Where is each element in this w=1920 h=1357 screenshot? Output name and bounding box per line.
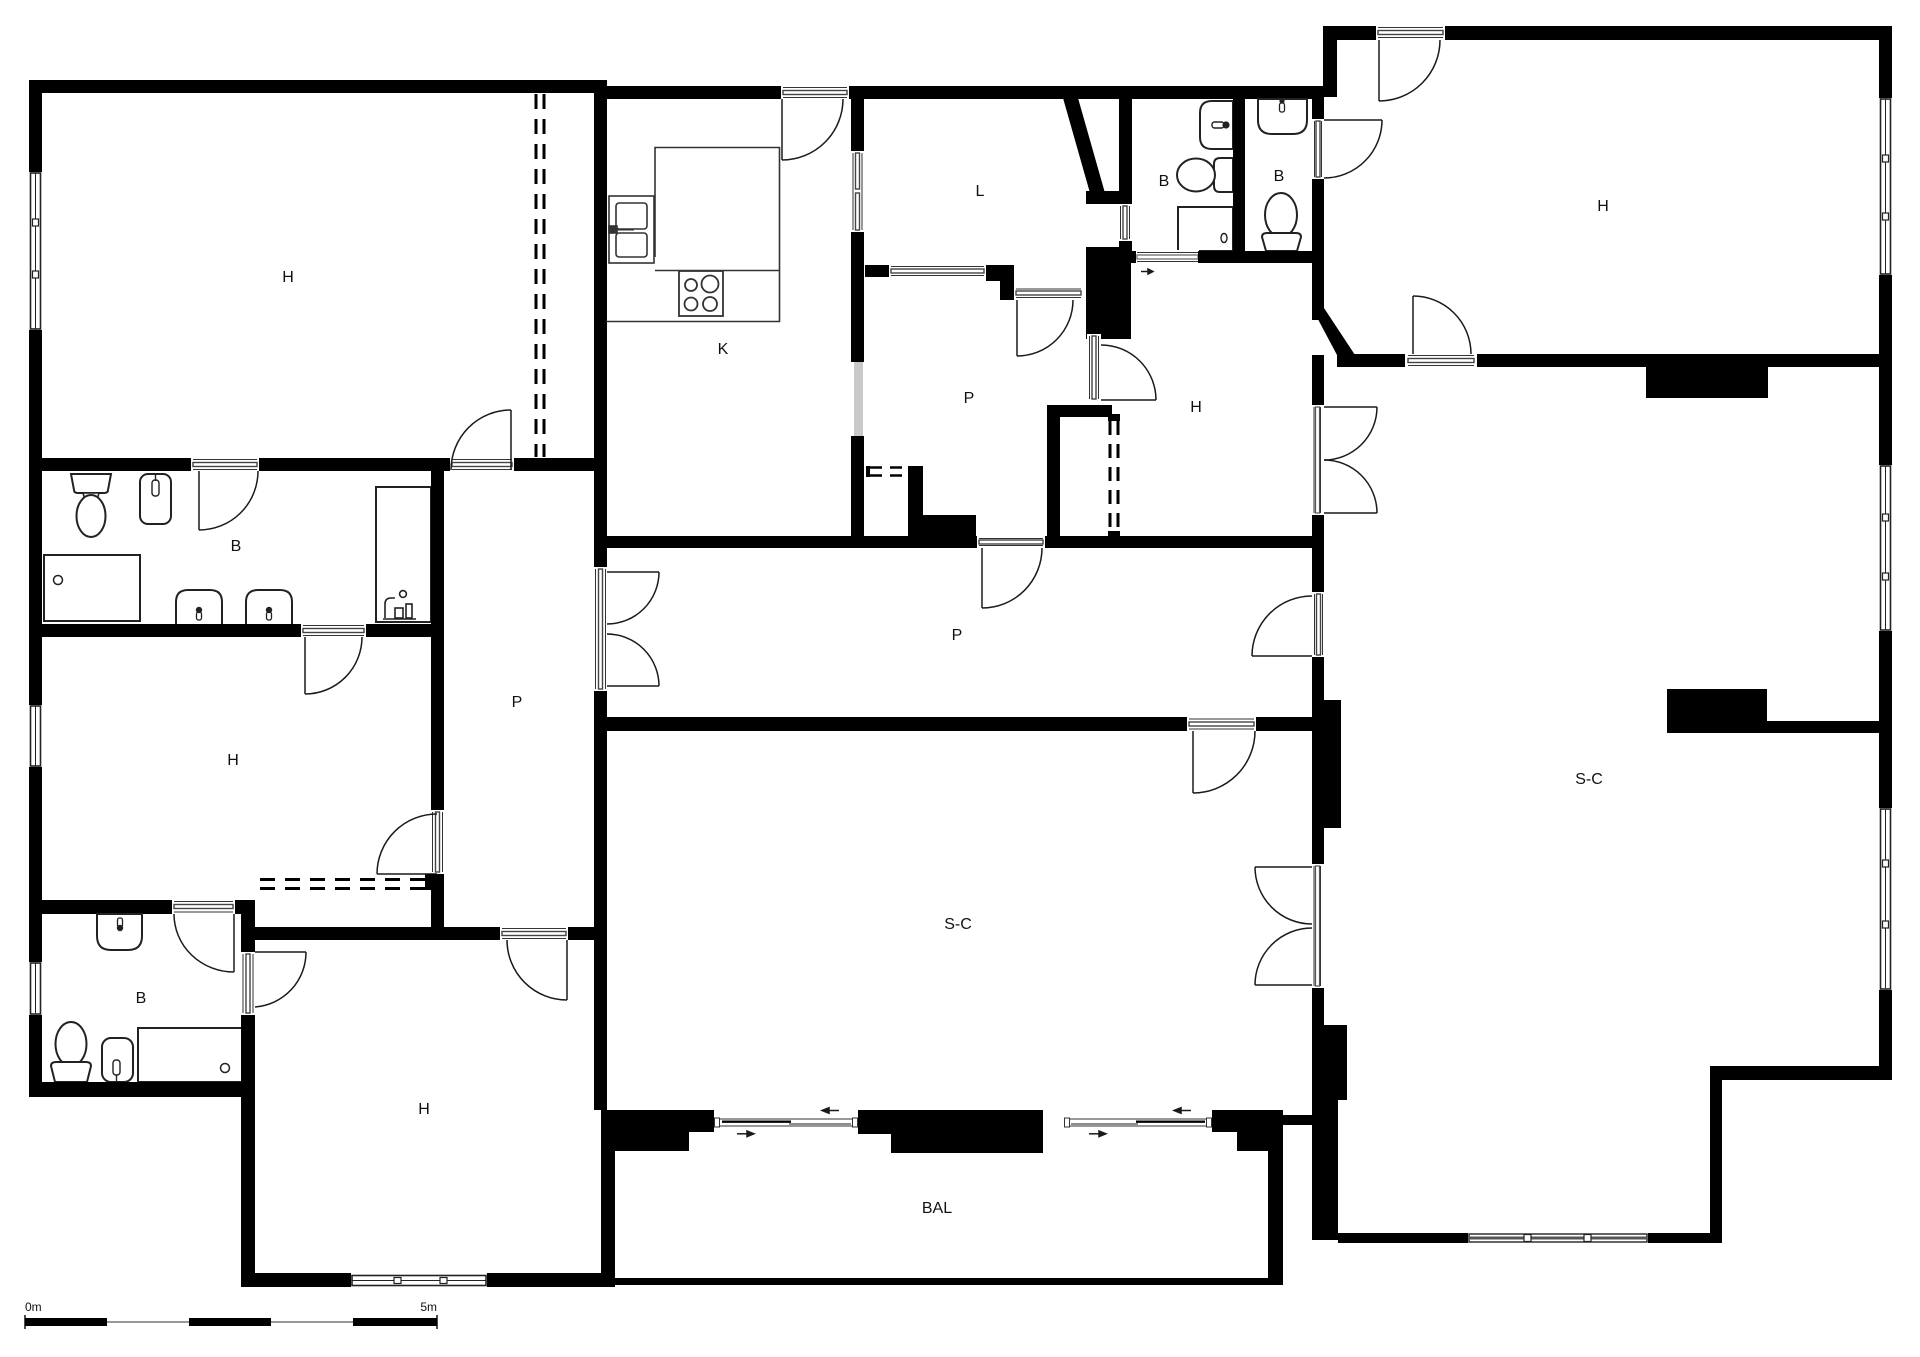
svg-text:H: H: [1190, 399, 1202, 416]
svg-text:0m: 0m: [25, 1300, 42, 1314]
svg-text:B: B: [1159, 173, 1170, 190]
svg-text:P: P: [964, 390, 975, 407]
svg-text:H: H: [1597, 198, 1609, 215]
svg-text:S-C: S-C: [944, 916, 972, 933]
svg-text:H: H: [227, 752, 239, 769]
svg-text:H: H: [282, 269, 294, 286]
svg-text:B: B: [1274, 168, 1285, 185]
svg-text:B: B: [231, 538, 242, 555]
svg-text:S-C: S-C: [1575, 771, 1603, 788]
svg-text:H: H: [418, 1101, 430, 1118]
svg-text:P: P: [512, 694, 523, 711]
svg-text:5m: 5m: [420, 1300, 437, 1314]
svg-text:B: B: [136, 990, 147, 1007]
svg-text:P: P: [952, 627, 963, 644]
svg-text:BAL: BAL: [922, 1200, 952, 1217]
svg-text:K: K: [718, 341, 729, 358]
svg-text:L: L: [976, 183, 985, 200]
